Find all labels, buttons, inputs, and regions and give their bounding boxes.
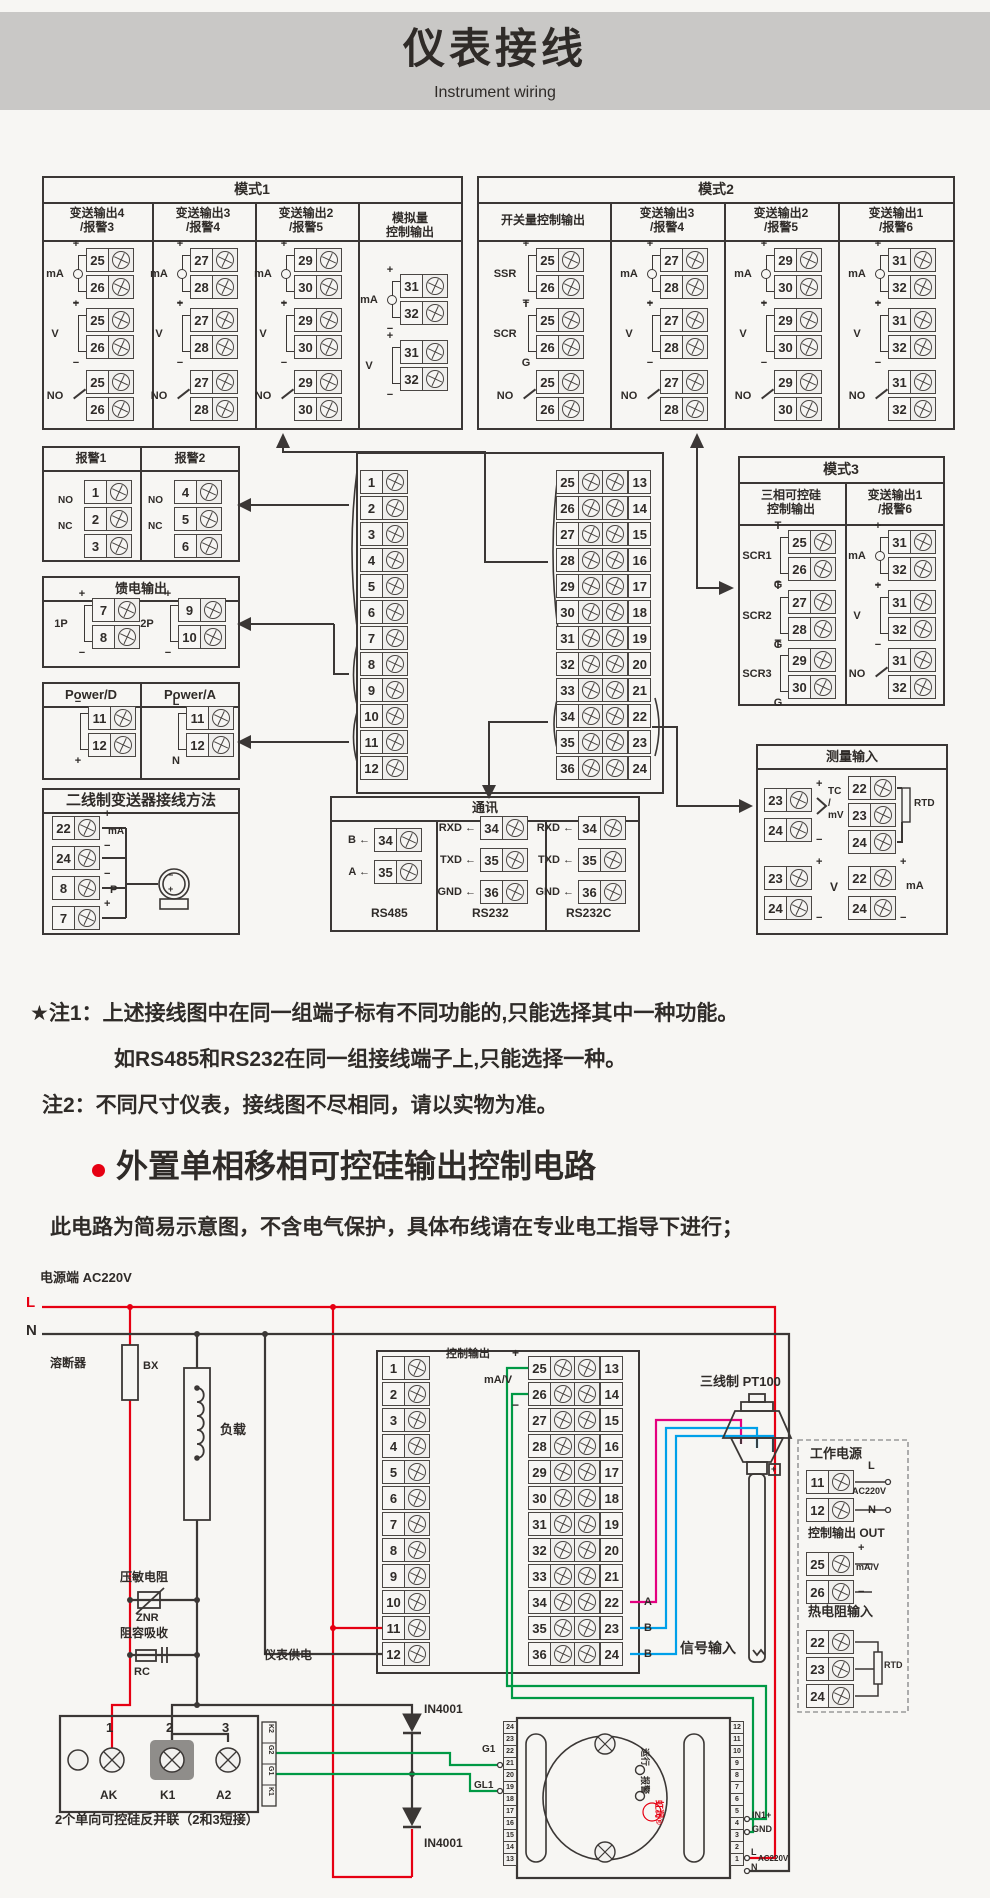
- terminal: 12: [360, 756, 408, 780]
- top-mark: +: [870, 580, 886, 592]
- label: RXD ←: [439, 822, 476, 835]
- terminal-number: 7: [360, 626, 383, 650]
- wire-hook: [880, 597, 888, 634]
- screw-terminal-icon: [386, 499, 404, 517]
- screw-terminal-icon: [578, 1515, 596, 1533]
- terminal-row: 27: [190, 248, 238, 272]
- screw-cell: [422, 301, 448, 325]
- terminal-row: 32 20: [556, 652, 651, 676]
- screw-terminal-icon: [112, 400, 130, 418]
- note-1: ★注1：上述接线图中在同一组端子标有不同功能的,只能选择其中一种功能。: [30, 1002, 738, 1027]
- terminal-row: 12: [88, 733, 136, 757]
- label: 2个单向可控硅反并联（2和3短接）: [55, 1812, 259, 1827]
- terminal-pair: 25 26: [536, 248, 584, 299]
- label: BX: [143, 1360, 158, 1373]
- terminal-number: 33: [556, 678, 579, 702]
- terminal-pair: 29 30: [294, 308, 342, 359]
- signal-label: V: [612, 328, 646, 340]
- wire-hook: [182, 255, 190, 292]
- signal-label: mA: [352, 294, 386, 306]
- screw-cell: [828, 1470, 854, 1494]
- screw-terminal-icon: [554, 1619, 572, 1637]
- terminal-number: 35: [374, 860, 397, 884]
- screw-cell: [828, 1580, 854, 1604]
- screw-terminal-icon: [554, 1593, 572, 1611]
- terminal-number: 18: [600, 1486, 623, 1510]
- label: N: [26, 1322, 37, 1340]
- screw-cell: [828, 1684, 854, 1708]
- screw-cell: [196, 480, 222, 504]
- terminal-number: 12: [360, 756, 383, 780]
- label: 二线制变送器接线方法: [66, 792, 216, 810]
- label: −: [168, 870, 173, 881]
- terminal-row: 32: [888, 557, 936, 581]
- screw-terminal-icon: [874, 833, 892, 851]
- screw-cell: [602, 522, 628, 546]
- terminal: 8: [360, 652, 408, 676]
- screw-cell: [578, 496, 604, 520]
- screw-terminal-icon: [686, 373, 704, 391]
- screw-terminal-icon: [914, 338, 932, 356]
- screw-terminal-icon: [112, 373, 130, 391]
- label: GND ←: [438, 886, 477, 899]
- terminal-number: 4: [360, 548, 383, 572]
- signal-label: NO: [142, 390, 176, 402]
- screw-cell: [200, 625, 226, 649]
- bottom-mark: −: [756, 357, 772, 369]
- signal-label: V: [246, 328, 280, 340]
- terminal-group: V + − 31 32: [840, 590, 944, 641]
- terminal-pair: 29 30: [788, 648, 836, 699]
- terminal-number: 17: [600, 1460, 623, 1484]
- terminal-row: 26: [788, 557, 836, 581]
- terminal-number: 25: [528, 1356, 551, 1380]
- terminal-pair: 29 30: [774, 370, 822, 421]
- screw-terminal-icon: [800, 373, 818, 391]
- label: TXD ←: [538, 854, 574, 867]
- divider: [738, 482, 945, 484]
- screw-cell: [550, 1382, 576, 1406]
- screw-cell: [108, 370, 134, 394]
- screw-cell: [404, 1590, 430, 1614]
- screw-cell: [786, 818, 812, 842]
- terminal-number: 12: [88, 733, 111, 757]
- label: ZNR: [136, 1612, 159, 1625]
- screw-cell: [602, 730, 628, 754]
- label: V: [830, 880, 838, 894]
- label: +: [816, 856, 822, 869]
- screw-cell: [602, 470, 628, 494]
- screw-cell: [574, 1616, 600, 1640]
- label: +: [771, 1464, 776, 1475]
- terminal-row: 28: [660, 397, 708, 421]
- terminal: 24: [848, 830, 896, 854]
- terminal-number: 34: [480, 816, 503, 840]
- terminal-number: 27: [660, 248, 683, 272]
- screw-terminal-icon: [386, 473, 404, 491]
- screw-terminal-icon: [320, 251, 338, 269]
- terminal-group: V + − 31 32: [352, 340, 456, 391]
- top-mark: +: [74, 588, 90, 600]
- terminal-number: 32: [556, 652, 579, 676]
- terminal-row: 27: [788, 590, 836, 614]
- screw-cell: [682, 308, 708, 332]
- terminal: 11: [806, 1470, 854, 1494]
- screw-cell: [316, 308, 342, 332]
- screw-cell: [550, 1434, 576, 1458]
- terminal-number: 34: [528, 1590, 551, 1614]
- screw-terminal-icon: [408, 1411, 426, 1429]
- screw-terminal-icon: [78, 849, 96, 867]
- terminal-number: 27: [190, 370, 213, 394]
- terminal-number: 35: [556, 730, 579, 754]
- label: +: [104, 898, 110, 911]
- label: −: [104, 868, 110, 881]
- note-2: 注2：不同尺寸仪表，接线图不尽相同，请以实物为准。: [42, 1094, 558, 1119]
- label: A2: [216, 1788, 231, 1802]
- terminal-number: 32: [888, 397, 911, 421]
- terminal-number: 31: [888, 530, 911, 554]
- signal-wires-B: [630, 1428, 773, 1654]
- terminal-number: 30: [774, 335, 797, 359]
- signal-label: SSR: [488, 268, 522, 280]
- terminal-pair: 25 26: [86, 248, 134, 299]
- terminal-number: 25: [86, 370, 109, 394]
- screw-terminal-icon: [554, 1567, 572, 1585]
- terminal-number: 32: [888, 617, 911, 641]
- label: 负载: [220, 1422, 246, 1437]
- pin-number: 1: [730, 1853, 744, 1866]
- label: RXD ←: [537, 822, 574, 835]
- screw-terminal-icon: [832, 1583, 850, 1601]
- terminal-row: 29 17: [556, 574, 651, 598]
- screw-terminal-icon: [914, 278, 932, 296]
- label: 变送输出3 /报警4: [176, 206, 231, 234]
- label: RS485: [371, 906, 408, 920]
- terminal-number: 13: [628, 470, 651, 494]
- screw-cell: [382, 600, 408, 624]
- page-title: 仪表接线: [403, 24, 587, 74]
- screw-terminal-icon: [874, 869, 892, 887]
- trigger-right-strip: 121110987654321: [730, 1722, 744, 1866]
- screw-terminal-icon: [606, 551, 624, 569]
- terminal-row: 11: [186, 706, 234, 730]
- terminal-row: 12: [186, 733, 234, 757]
- screw-cell: [382, 730, 408, 754]
- wire-hook: [84, 605, 92, 642]
- screw-cell: [910, 617, 936, 641]
- screw-cell: [74, 876, 100, 900]
- screw-terminal-icon: [386, 733, 404, 751]
- screw-cell: [208, 706, 234, 730]
- terminal: 9: [382, 1564, 430, 1588]
- screw-terminal-icon: [582, 629, 600, 647]
- terminal: 3: [84, 534, 132, 558]
- signal-label: NO: [726, 390, 760, 402]
- screw-terminal-icon: [800, 311, 818, 329]
- terminal-row: 32 20: [528, 1538, 623, 1562]
- terminal-number: 32: [400, 301, 423, 325]
- terminal-row: 32: [888, 617, 936, 641]
- terminal-row: 35 23: [528, 1616, 623, 1640]
- screw-terminal-icon: [408, 1515, 426, 1533]
- wire-hook: [880, 315, 888, 352]
- terminal-number: 28: [190, 397, 213, 421]
- terminal-number: 2: [84, 507, 107, 531]
- wire-hook: [652, 315, 660, 352]
- top-mark: +: [756, 298, 772, 310]
- screw-terminal-icon: [216, 251, 234, 269]
- screw-terminal-icon: [386, 551, 404, 569]
- terminal: 2: [360, 496, 408, 520]
- terminal-number: 24: [848, 896, 871, 920]
- screw-terminal-icon: [386, 525, 404, 543]
- screw-terminal-icon: [112, 338, 130, 356]
- terminal-row: 25: [86, 308, 134, 332]
- terminal-number: 30: [774, 275, 797, 299]
- screw-cell: [550, 1538, 576, 1562]
- label: 三线制 PT100: [700, 1374, 781, 1389]
- wire-hook: [78, 315, 86, 352]
- screw-cell: [910, 675, 936, 699]
- terminal-row: 31: [400, 340, 448, 364]
- terminal-number: 28: [556, 548, 579, 572]
- divider: [42, 240, 463, 242]
- signal-label: mA: [726, 268, 760, 280]
- label: 报警2: [175, 451, 206, 465]
- terminal-number: 24: [628, 756, 651, 780]
- screw-terminal-icon: [814, 560, 832, 578]
- screw-terminal-icon: [582, 577, 600, 595]
- terminal-group: mA + − 29 30: [726, 248, 830, 299]
- terminal-row: 25: [536, 248, 584, 272]
- terminal-group: SSR + − 25 26: [488, 248, 592, 299]
- screw-terminal-icon: [582, 603, 600, 621]
- terminal-number: 29: [528, 1460, 551, 1484]
- terminal-number: 6: [360, 600, 383, 624]
- screw-cell: [578, 574, 604, 598]
- terminal-row: 30: [774, 397, 822, 421]
- screw-terminal-icon: [582, 551, 600, 569]
- terminal-number: 22: [848, 866, 871, 890]
- terminal-group: NO 25 26: [38, 370, 142, 421]
- terminal-number: 25: [556, 470, 579, 494]
- screw-cell: [574, 1512, 600, 1536]
- terminal: 11: [360, 730, 408, 754]
- label: mA: [906, 880, 924, 893]
- terminal-number: 24: [600, 1642, 623, 1666]
- screw-terminal-icon: [578, 1489, 596, 1507]
- screw-terminal-icon: [606, 603, 624, 621]
- screw-cell: [396, 860, 422, 884]
- terminal-number: 31: [400, 274, 423, 298]
- label: +: [104, 808, 110, 821]
- top-mark: +: [276, 238, 292, 250]
- terminal-pair: 31 32: [888, 530, 936, 581]
- screw-terminal-icon: [554, 1489, 572, 1507]
- screw-terminal-icon: [114, 709, 132, 727]
- terminal: 12: [806, 1498, 854, 1522]
- screw-cell: [578, 470, 604, 494]
- terminal-pair: 31 32: [888, 248, 936, 299]
- screw-terminal-icon: [320, 400, 338, 418]
- screw-cell: [108, 308, 134, 332]
- terminal-number: 26: [536, 335, 559, 359]
- bottom-mark: −: [172, 357, 188, 369]
- screw-terminal-icon: [408, 1619, 426, 1637]
- screw-terminal-icon: [914, 400, 932, 418]
- label: AK: [100, 1788, 117, 1802]
- screw-cell: [404, 1564, 430, 1588]
- screw-terminal-icon: [386, 655, 404, 673]
- terminal-number: 11: [360, 730, 383, 754]
- terminal-row: 36 24: [528, 1642, 623, 1666]
- screw-cell: [828, 1552, 854, 1576]
- label: K1: [160, 1788, 175, 1802]
- terminal: 5: [360, 574, 408, 598]
- screw-cell: [382, 678, 408, 702]
- label: TXD ←: [440, 854, 476, 867]
- screw-cell: [810, 530, 836, 554]
- screw-cell: [550, 1642, 576, 1666]
- label: Power/A: [164, 687, 216, 702]
- screw-terminal-icon: [578, 1385, 596, 1403]
- terminal-row: 26: [536, 275, 584, 299]
- terminal-pair: 29 30: [774, 308, 822, 359]
- wire-hook: [780, 597, 788, 634]
- terminal-number: 26: [86, 275, 109, 299]
- terminal-number: 4: [382, 1434, 405, 1458]
- signal-label: NO: [38, 390, 72, 402]
- screw-cell: [558, 370, 584, 394]
- terminal-row: 30: [774, 275, 822, 299]
- terminal-number: 22: [806, 1630, 829, 1654]
- screw-terminal-icon: [578, 1593, 596, 1611]
- terminal-group: NO 31 32: [840, 370, 944, 421]
- terminal-number: 27: [190, 308, 213, 332]
- terminal-number: 25: [788, 530, 811, 554]
- terminal-number: 30: [528, 1486, 551, 1510]
- terminal: 2: [382, 1382, 430, 1406]
- screw-cell: [196, 507, 222, 531]
- screw-terminal-icon: [78, 819, 96, 837]
- screw-terminal-icon: [800, 400, 818, 418]
- screw-cell: [110, 733, 136, 757]
- screw-terminal-icon: [110, 483, 128, 501]
- terminal-number: 31: [556, 626, 579, 650]
- terminal: 7: [360, 626, 408, 650]
- terminal-row: 30: [294, 275, 342, 299]
- screw-terminal-icon: [582, 759, 600, 777]
- screw-terminal-icon: [582, 655, 600, 673]
- wire-hook: [286, 315, 294, 352]
- terminal-group: mA + − 31 32: [840, 530, 944, 581]
- terminal-number: 20: [600, 1538, 623, 1562]
- terminal-pair: 27 28: [190, 370, 238, 421]
- terminal-number: 25: [536, 370, 559, 394]
- terminal-number: 32: [400, 367, 423, 391]
- terminal-number: 12: [186, 733, 209, 757]
- terminal-row: 27 15: [528, 1408, 623, 1432]
- screw-cell: [316, 370, 342, 394]
- resistor-icon: [136, 1650, 156, 1661]
- signal-label: NO: [612, 390, 646, 402]
- screw-cell: [796, 275, 822, 299]
- terminal: 22: [52, 816, 100, 840]
- terminal-number: 27: [788, 590, 811, 614]
- terminal-group: SCR3 T G 29 30: [740, 648, 844, 699]
- terminal-row: 25: [86, 248, 134, 272]
- terminal-number: 16: [628, 548, 651, 572]
- label: mA/V: [856, 1562, 879, 1573]
- terminal-number: 9: [178, 598, 201, 622]
- terminal-group: − + 11 12: [40, 706, 144, 757]
- terminal-number: 32: [528, 1538, 551, 1562]
- top-mark: +: [382, 264, 398, 276]
- top-mark: +: [172, 298, 188, 310]
- top-mark: +: [642, 238, 658, 250]
- screw-cell: [578, 600, 604, 624]
- terminal-number: 28: [660, 397, 683, 421]
- top-mark: T: [770, 580, 786, 592]
- label: 三相可控硅 控制输出: [761, 488, 821, 516]
- screw-cell: [810, 590, 836, 614]
- terminal-number: 11: [88, 706, 111, 730]
- terminal-row: 28: [788, 617, 836, 641]
- terminal-group: NO 25 26: [488, 370, 592, 421]
- load-box: [184, 1368, 210, 1520]
- terminal-row: 26: [536, 335, 584, 359]
- terminal-number: 24: [806, 1684, 829, 1708]
- screw-terminal-icon: [814, 620, 832, 638]
- label: AC220V: [758, 1854, 788, 1863]
- screw-terminal-icon: [320, 311, 338, 329]
- screw-cell: [796, 397, 822, 421]
- screw-cell: [422, 274, 448, 298]
- screw-terminal-icon: [562, 311, 580, 329]
- screw-cell: [110, 706, 136, 730]
- screw-terminal-icon: [408, 1567, 426, 1585]
- terminal-number: 26: [806, 1580, 829, 1604]
- label: L: [26, 1294, 35, 1312]
- label: 变送输出1 /报警6: [868, 488, 923, 516]
- terminal: 6: [174, 534, 222, 558]
- terminal-group: V + − 29 30: [726, 308, 830, 359]
- label: 变送输出4 /报警3: [70, 206, 125, 234]
- label: 馈电输出: [115, 581, 167, 596]
- label: IN4001: [424, 1702, 463, 1716]
- terminal: 22: [848, 776, 896, 800]
- label: 热电阻输入: [808, 1604, 873, 1619]
- top-mark: +: [756, 238, 772, 250]
- terminal-number: 14: [628, 496, 651, 520]
- terminal-number: 31: [888, 248, 911, 272]
- screw-terminal-icon: [832, 1555, 850, 1573]
- signal-label: mA: [246, 268, 280, 280]
- page-subtitle: Instrument wiring: [434, 84, 556, 103]
- label: NC: [58, 521, 72, 533]
- screw-terminal-icon: [200, 537, 218, 555]
- screw-cell: [870, 830, 896, 854]
- label: P: [110, 884, 117, 897]
- terminal: 22: [806, 1630, 854, 1654]
- screw-cell: [828, 1657, 854, 1681]
- terminal-pair: 31 32: [888, 648, 936, 699]
- screw-terminal-icon: [604, 851, 622, 869]
- terminal-number: 12: [806, 1498, 829, 1522]
- terminal-number: 21: [628, 678, 651, 702]
- label: 阻容吸收: [120, 1626, 168, 1640]
